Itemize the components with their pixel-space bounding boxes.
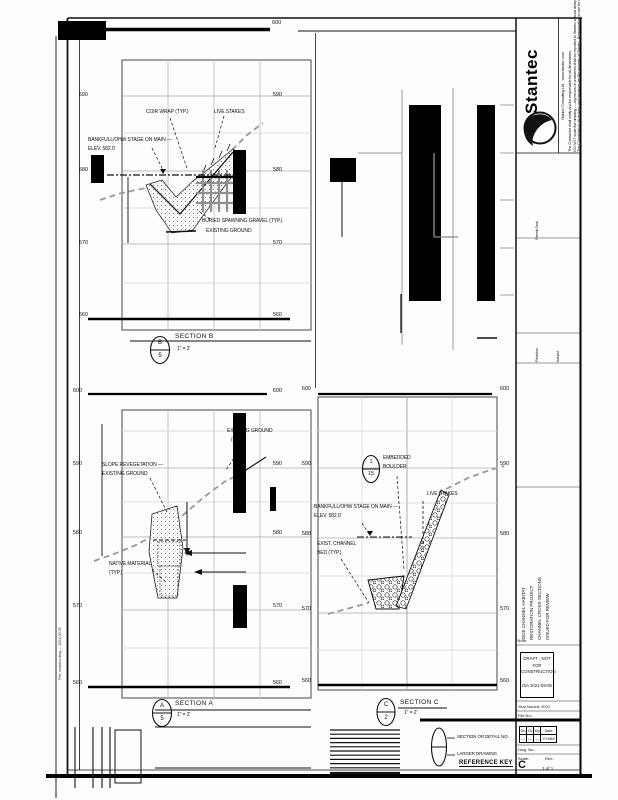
section-a-callout-letter: A <box>156 703 168 709</box>
sheet-letter: C <box>518 759 526 771</box>
elev-label: 580 <box>266 530 282 536</box>
file-no-row: File No.: <box>518 713 533 718</box>
refkey-title: REFERENCE KEY <box>459 760 513 767</box>
sheet-of: 1 of 1 <box>542 766 553 771</box>
refkey-line-2: LARGER DRAWING <box>457 751 497 756</box>
annotation-live-stakes: LIVE STAKES <box>214 110 245 116</box>
plot-stamp-note: Plot: sections.dwg — 2021-09-05 <box>57 565 62 680</box>
annotation-existing-ground-2: (TYP.) <box>231 438 244 444</box>
note-label: Note: <box>518 638 528 643</box>
year-issued-row: Year Issued: 2021 <box>518 704 550 709</box>
elev-label: 580 <box>266 167 282 173</box>
annotation-bankfull-2: ELEV. 582.0' <box>314 514 341 520</box>
annotation-bankfull-1: BANKFULL/OHW STAGE ON MAIN — <box>88 138 172 144</box>
elev-label: 560 <box>72 312 88 318</box>
revision-label: Revision <box>534 336 539 362</box>
stantec-wordmark: Stantec <box>522 18 542 114</box>
section-a-geometry <box>75 413 311 788</box>
annotation-coir-wrap: COIR WRAP (TYP.) <box>146 110 188 116</box>
rev-col-header: Dg <box>534 727 541 735</box>
rev-cell: — <box>534 735 541 743</box>
elev-label: 560 <box>500 678 516 684</box>
elev-label: 570 <box>295 606 311 612</box>
issued-label: Issued <box>555 336 560 362</box>
rev-cell: YY.MM <box>541 735 557 743</box>
elev-label: 590 <box>72 92 88 98</box>
boulder-callout-number: 1 <box>365 460 377 466</box>
annotation-channel-bed-2: BED (TYP.) <box>317 551 341 557</box>
rev-col-header: Dn <box>520 727 527 735</box>
elev-label: 580 <box>500 531 516 537</box>
elev-label: 600 <box>266 388 282 394</box>
project-line-1: SIDE CHANNEL HABITAT <box>521 488 526 640</box>
elev-label: 580 <box>295 531 311 537</box>
elev-label-600-top: 600 <box>272 20 288 26</box>
annotation-native-material-2: (TYP.) <box>109 571 122 577</box>
revision-table: Dn Ck Dg Date — — — YY.MM <box>519 726 557 743</box>
elev-label: 580 <box>66 530 82 536</box>
annotation-slope-1: SLOPE REVEGETATION — <box>102 463 163 469</box>
elev-label: 590 <box>295 461 311 467</box>
elev-label: 570 <box>500 606 516 612</box>
section-b-title: SECTION B <box>175 333 214 340</box>
elev-label: 590 <box>500 461 516 467</box>
elev-label: 560 <box>266 312 282 318</box>
annotation-embedded-2: BOULDER <box>383 465 406 471</box>
rev-col-header: Date <box>541 727 557 735</box>
project-line-3: CHANNEL CROSS SECTIONS <box>537 488 542 640</box>
elev-label: 570 <box>266 240 282 246</box>
annotation-bankfull-2: ELEV. 582.0' <box>88 147 115 153</box>
draft-line-1: DRAFT - NOT FOR <box>523 656 550 668</box>
annotation-embedded-1: EMBEDDED <box>383 456 411 462</box>
annotation-native-material-1: NATIVE MATERIAL <box>109 562 151 568</box>
elev-label: 580 <box>72 167 88 173</box>
annotation-existing-ground-1: EXISTING GROUND <box>227 429 272 435</box>
reference-key-symbol <box>432 728 456 766</box>
annotation-existing-ground: EXISTING GROUND <box>206 229 251 235</box>
section-c-title: SECTION C <box>400 699 439 706</box>
elev-label: 600 <box>500 386 516 392</box>
elev-label: 570 <box>66 603 82 609</box>
drawing-sheet: { "top": { "elev": "600" }, "sec_b": { "… <box>0 0 618 800</box>
section-b-callout-sheet: 5 <box>154 353 166 359</box>
project-line-4: ISSUED FOR REVIEW <box>545 488 550 640</box>
elev-label: 590 <box>266 461 282 467</box>
draft-stamp-box: DRAFT - NOT FOR CONSTRUCTION ISA 2021-09… <box>520 652 554 698</box>
plan-fragment <box>330 88 514 350</box>
draft-line-2: CONSTRUCTION <box>521 669 556 674</box>
rev-cell: — <box>520 735 527 743</box>
section-b-scale: 1" = 2' <box>177 347 190 353</box>
legal-note-3: The Copyrights to all designs and drawin… <box>576 16 581 152</box>
elev-label: 590 <box>266 92 282 98</box>
draft-date: ISA 2021-09-05 <box>521 683 553 690</box>
section-b-geometry <box>91 116 263 364</box>
section-a-grid <box>88 394 311 698</box>
rev-cell: — <box>527 735 534 743</box>
elev-label: 570 <box>266 603 282 609</box>
rev-row: Rev.: <box>545 756 554 761</box>
dwg-no-row: Dwg. No.: <box>518 747 536 752</box>
elev-label: 560 <box>266 680 282 686</box>
annotation-bankfull-1: BANKFULL/OHW STAGE ON MAIN — <box>314 505 398 511</box>
project-line-2: RESTORATION PROJECT <box>529 488 534 640</box>
annotation-slope-2: EXISTING GROUND <box>102 472 147 478</box>
elev-label: 570 <box>72 240 88 246</box>
section-c-callout-letter: C <box>380 702 392 708</box>
annotation-spawning-gravel: BURIED SPAWNING GRAVEL (TYP.) <box>202 219 282 225</box>
elev-label: 560 <box>295 678 311 684</box>
section-a-callout-sheet: 5 <box>156 716 168 722</box>
refkey-line-1: SECTION OR DETAIL NO. <box>457 734 509 739</box>
section-c-callout-sheet: 2 <box>380 715 392 721</box>
rev-col-header: Ck <box>527 727 534 735</box>
permit-seal-label: Permit-Seal <box>534 192 539 240</box>
stantec-address: Stantec Consulting Ltd. · www.stantec.co… <box>560 30 565 120</box>
section-b-callout-letter: B <box>154 340 166 346</box>
elev-label: 600 <box>66 388 82 394</box>
section-a-title: SECTION A <box>175 700 213 707</box>
boulder-callout-sheet: 15 <box>365 472 377 478</box>
annotation-channel-bed-1: EXIST. CHANNEL <box>317 542 356 548</box>
section-a-scale: 1" = 2' <box>177 713 190 719</box>
annotation-live-stakes: LIVE STAKES <box>427 492 458 498</box>
section-c-scale: 1" = 2' <box>404 711 417 717</box>
elev-label: 560 <box>66 680 82 686</box>
elev-label: 590 <box>66 461 82 467</box>
elev-label: 600 <box>295 386 311 392</box>
